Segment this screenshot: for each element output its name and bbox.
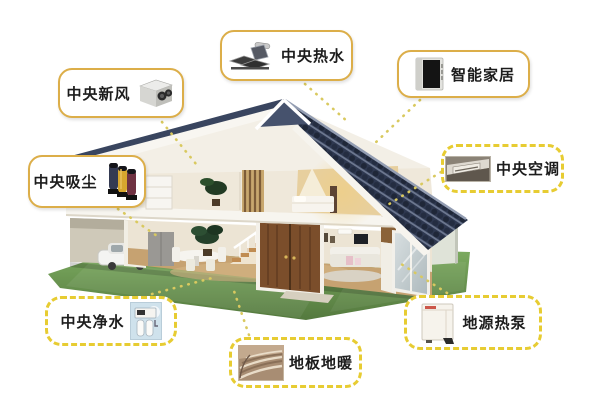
connector-smart-home: [372, 100, 420, 146]
callout-hot-water: 中央热水: [220, 30, 353, 81]
callout-vacuum: 中央吸尘: [28, 155, 146, 208]
floor-heating-icon: [238, 345, 284, 381]
front-door: [256, 214, 324, 296]
callout-smart-home: 智能家居: [397, 50, 530, 98]
vacuum-cylinders-icon: [103, 161, 141, 203]
callout-ac: 中央空调: [441, 144, 564, 193]
ceiling-ac-icon: [445, 156, 491, 182]
callout-ac-label: 中央空调: [496, 158, 560, 179]
callout-heat-pump-label: 地源热泵: [462, 312, 526, 333]
callout-fresh-air: 中央新风: [58, 68, 184, 118]
callout-water-purifier-label: 中央净水: [60, 311, 124, 332]
callout-fresh-air-label: 中央新风: [67, 83, 131, 104]
smart-home-panel-icon: [412, 56, 446, 92]
callout-smart-home-label: 智能家居: [451, 64, 515, 85]
callout-floor-heating: 地板地暖: [229, 337, 362, 388]
callout-hot-water-label: 中央热水: [281, 45, 345, 66]
smart-home-diagram: 中央新风 中央热水 智能家居 中央吸尘: [0, 0, 600, 400]
callout-heat-pump: 地源热泵: [404, 295, 542, 350]
solar-water-heater-icon: [228, 39, 276, 73]
ground-heat-pump-icon: [419, 301, 457, 345]
callout-vacuum-label: 中央吸尘: [34, 171, 98, 192]
fresh-air-unit-icon: [136, 76, 176, 110]
callout-floor-heating-label: 地板地暖: [289, 352, 353, 373]
water-purifier-icon: [130, 302, 162, 340]
callout-water-purifier: 中央净水: [45, 296, 177, 346]
